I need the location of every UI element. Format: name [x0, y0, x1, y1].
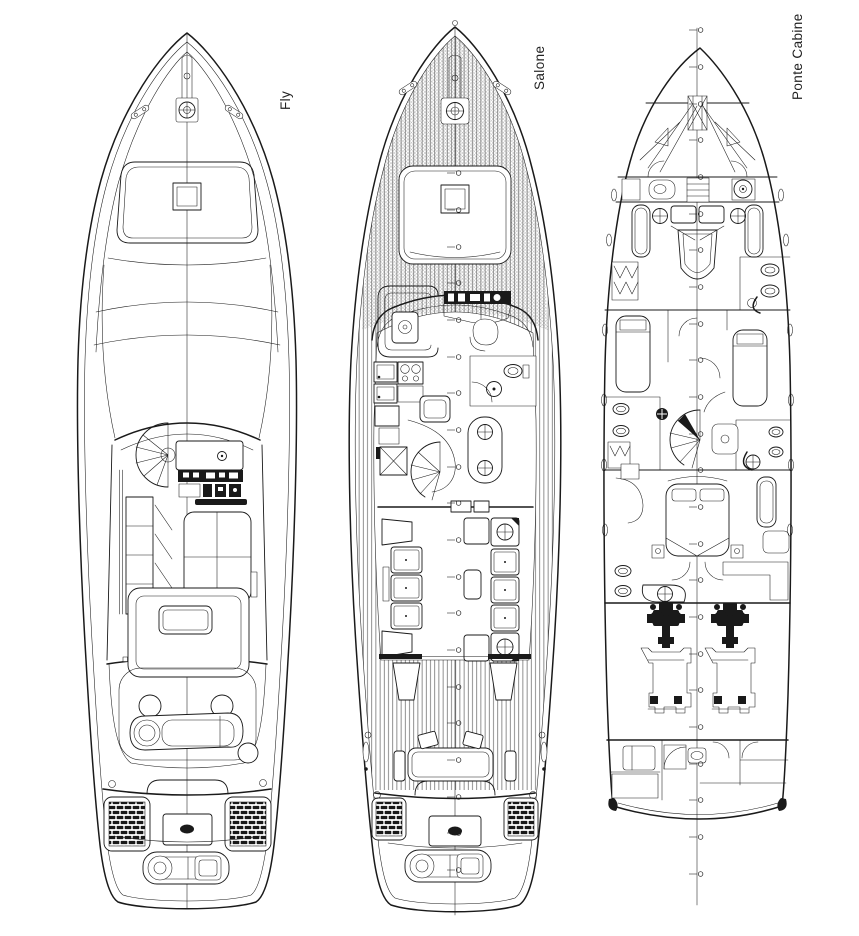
engine-vent-left — [372, 798, 406, 840]
tender-jetski — [143, 852, 229, 884]
utility-band — [622, 178, 755, 202]
bow-sunpad — [399, 166, 511, 264]
tender-jetski — [405, 850, 491, 882]
round-seat-left — [139, 695, 161, 717]
bow-cleat-left — [130, 104, 150, 120]
helm-seat — [473, 319, 498, 345]
dumbwaiter — [380, 447, 407, 475]
flybridge-front-windshield — [115, 423, 260, 440]
dinette-table — [392, 312, 418, 343]
wardrobe-left — [612, 262, 638, 300]
helm-console — [176, 441, 247, 505]
master-cabin — [615, 464, 789, 602]
bow-cleat-right — [224, 104, 244, 120]
yacht-deck-plans-sheet: Fly Salone Ponte Cabine — [0, 0, 859, 936]
engine-vent-right — [225, 797, 271, 851]
coffee-table — [464, 570, 481, 599]
aft-deck — [109, 664, 267, 788]
flybridge — [107, 423, 267, 677]
aft-sofa — [128, 588, 249, 677]
fwd-bathroom-right — [740, 257, 790, 313]
ponte-cabine-plan-label: Ponte Cabine — [790, 13, 805, 100]
sun-lounger — [130, 713, 243, 750]
stove — [398, 362, 423, 384]
bow-chain-locker — [640, 96, 755, 177]
bathroom-left — [608, 404, 668, 469]
transom-and-platform — [103, 780, 271, 884]
spiral-staircase — [136, 423, 175, 487]
salone-plan-label: Salone — [532, 46, 547, 90]
deck-plans-drawing: Fly Salone Ponte Cabine — [0, 0, 859, 936]
engine-vent-right — [504, 798, 538, 840]
garage-hatch — [147, 780, 228, 794]
ponte-cabine-deck-plan — [602, 28, 794, 905]
round-seat-aft — [238, 743, 258, 763]
engine-starboard — [705, 603, 755, 713]
guest-bed-left — [616, 316, 650, 392]
bathroom-right — [712, 424, 783, 470]
engine-vent-left — [104, 797, 150, 851]
day-head — [470, 356, 536, 406]
sideboard-vanity — [468, 417, 502, 483]
engine-room — [641, 603, 755, 713]
fly-deck-plan — [77, 33, 296, 909]
fly-plan-label: Fly — [278, 91, 293, 110]
crew-fwd-cabin — [612, 205, 790, 313]
foredeck-hatch — [173, 183, 201, 210]
hull-outline — [604, 48, 791, 819]
engine-port — [641, 603, 691, 713]
guest-bed-right — [733, 330, 767, 406]
guest-cabins — [605, 310, 791, 470]
crew-aft-cabin — [610, 740, 788, 800]
salone-deck-plan — [349, 21, 561, 916]
locker-handle — [180, 825, 194, 834]
master-head — [615, 566, 685, 603]
